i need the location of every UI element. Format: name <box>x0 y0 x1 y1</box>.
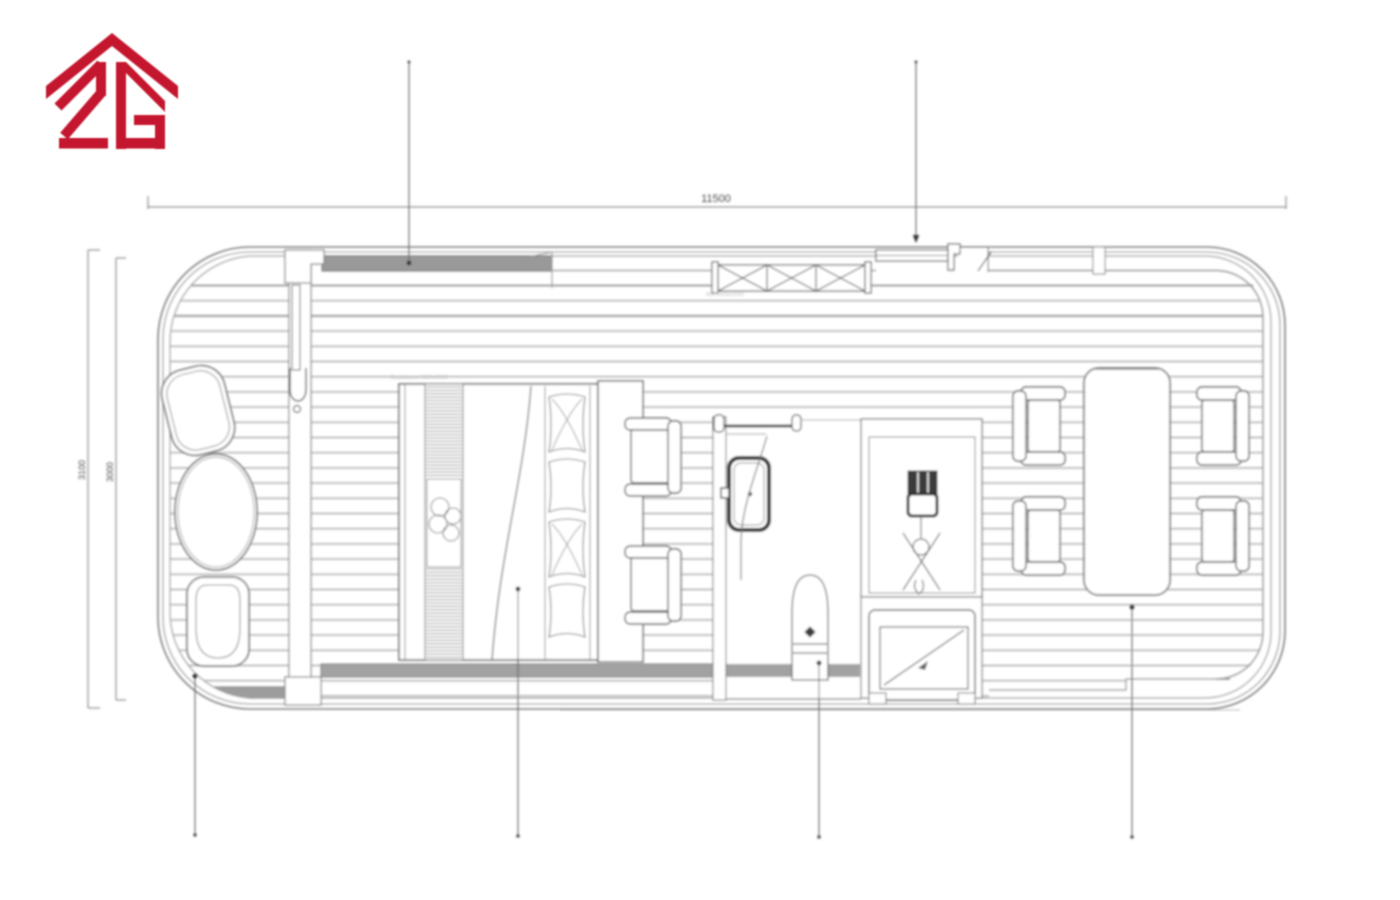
svg-text:Casablanca 1800x2000: Casablanca 1800x2000 <box>390 375 448 381</box>
svg-text:11500: 11500 <box>701 193 731 205</box>
svg-text:3100: 3100 <box>77 460 87 480</box>
svg-text:WC 1500x2000: WC 1500x2000 <box>706 292 744 298</box>
svg-text:3000: 3000 <box>105 462 115 482</box>
